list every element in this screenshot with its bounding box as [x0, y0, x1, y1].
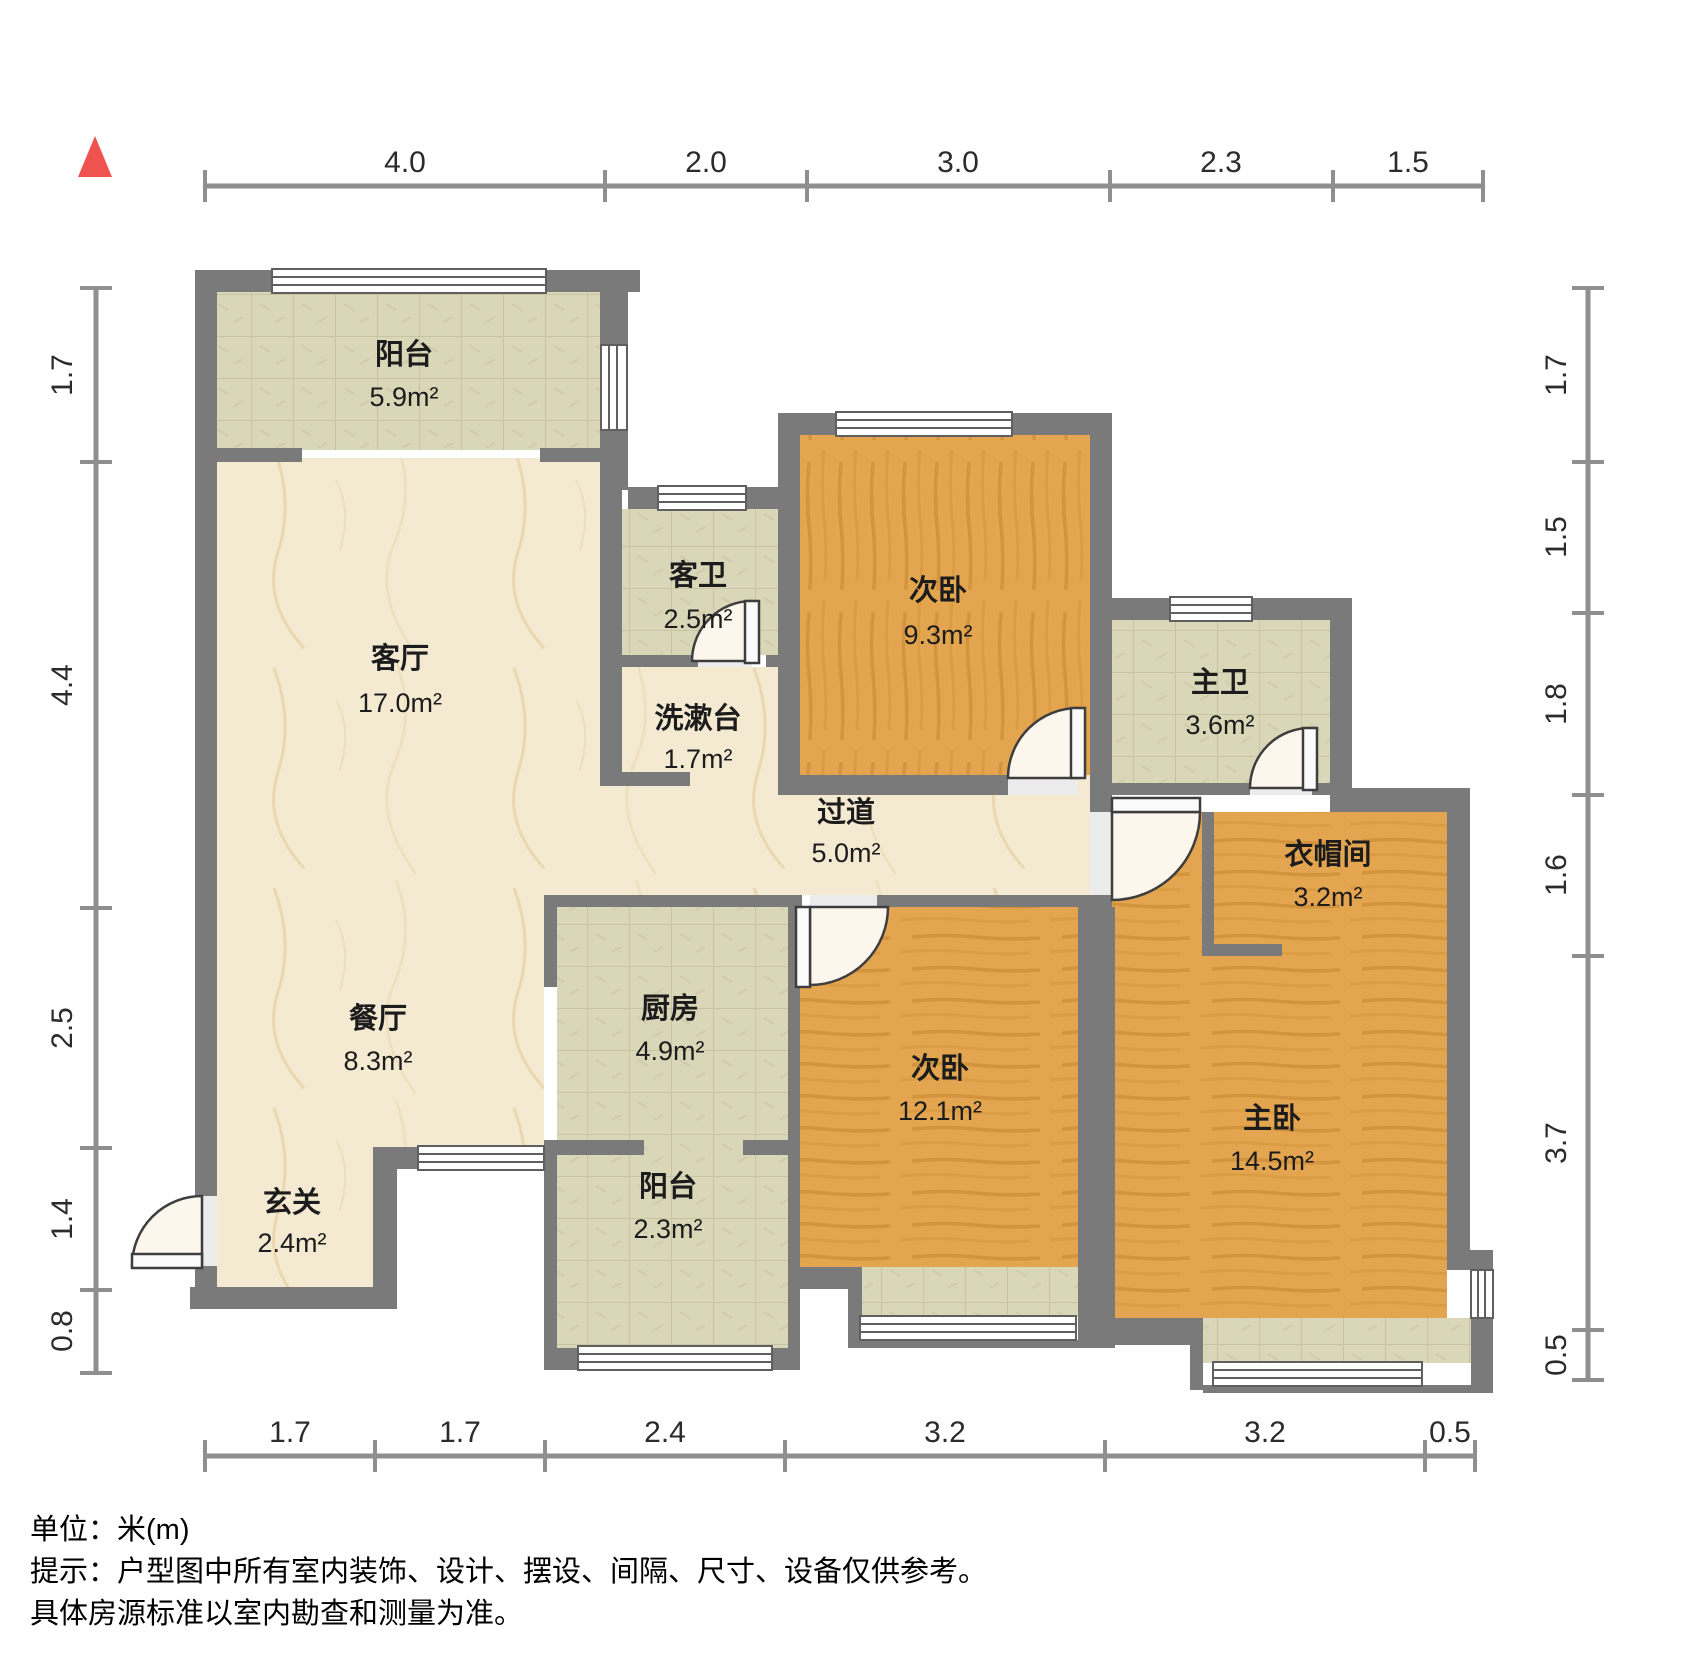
footer-unit: 单位：米(m): [30, 1506, 189, 1548]
bay-sill-bedroom-bottom: [862, 1267, 1078, 1317]
window-bay-master-side: [1471, 1270, 1493, 1318]
window-balcony-bottom: [578, 1346, 772, 1370]
dim-label: 3.2: [924, 1416, 966, 1449]
dim-label: 2.0: [685, 146, 727, 179]
door-entry: [132, 1196, 202, 1268]
svg-text:客厅: 客厅: [371, 641, 429, 675]
bay-sill-master: [1203, 1318, 1471, 1363]
svg-text:14.5m²: 14.5m²: [1230, 1146, 1314, 1176]
svg-text:2.4m²: 2.4m²: [257, 1228, 326, 1258]
footer-tip-line1: 提示：户型图中所有室内装饰、设计、摆设、间隔、尺寸、设备仅供参考。: [30, 1548, 987, 1590]
svg-text:3.6m²: 3.6m²: [1185, 710, 1254, 740]
svg-text:阳台: 阳台: [639, 1169, 697, 1203]
dim-label: 1.6: [1540, 854, 1573, 896]
floor-kitchen-and-balcony: [557, 907, 788, 1348]
window-master-bath: [1170, 597, 1252, 621]
dim-label: 1.7: [269, 1416, 311, 1449]
window-balcony-top: [272, 269, 546, 293]
svg-text:洗漱台: 洗漱台: [654, 701, 741, 735]
dim-label: 1.5: [1540, 516, 1573, 558]
dim-right: 1.7 1.5 1.8 1.6 3.7 0.5: [1540, 288, 1604, 1380]
floor-living: [217, 458, 600, 907]
dim-label: 1.7: [1540, 354, 1573, 396]
svg-text:主卫: 主卫: [1191, 666, 1249, 699]
dim-label: 1.8: [1540, 683, 1573, 725]
svg-text:客卫: 客卫: [669, 558, 727, 592]
dim-label: 4.4: [46, 664, 79, 706]
dim-label: 2.4: [644, 1416, 686, 1449]
north-arrow-icon: [78, 136, 112, 177]
svg-text:17.0m²: 17.0m²: [358, 688, 442, 718]
threshold-bedroom-bottom: [810, 895, 888, 907]
dim-label: 0.5: [1429, 1416, 1471, 1449]
svg-text:5.9m²: 5.9m²: [369, 382, 438, 412]
threshold-master-suite: [1090, 812, 1112, 895]
dim-label: 1.7: [439, 1416, 481, 1449]
window-dining-south: [418, 1146, 544, 1170]
dim-label: 2.5: [46, 1007, 79, 1049]
svg-text:次卧: 次卧: [911, 1052, 969, 1085]
svg-text:12.1m²: 12.1m²: [898, 1096, 982, 1126]
window-bedroom-top: [836, 412, 1012, 436]
dim-label: 0.8: [46, 1310, 79, 1352]
floor-plan-page: 阳台 5.9m² 客厅 17.0m² 客卫 2.5m² 洗漱台 1.7m² 次卧…: [0, 0, 1682, 1663]
dim-label: 2.3: [1200, 146, 1242, 179]
svg-text:3.2m²: 3.2m²: [1293, 882, 1362, 912]
svg-text:餐厅: 餐厅: [349, 1002, 407, 1035]
dim-label: 3.2: [1244, 1416, 1286, 1449]
window-balcony-side: [601, 345, 627, 430]
dim-label: 3.0: [937, 146, 979, 179]
window-guest-bath: [658, 486, 746, 510]
svg-text:2.3m²: 2.3m²: [633, 1214, 702, 1244]
svg-text:1.7m²: 1.7m²: [663, 744, 732, 774]
svg-text:过道: 过道: [817, 796, 875, 829]
svg-text:2.5m²: 2.5m²: [663, 604, 732, 634]
window-bay-master: [1213, 1362, 1422, 1386]
floor-cloakroom: [1214, 812, 1447, 944]
svg-text:阳台: 阳台: [375, 337, 433, 371]
dim-label: 3.7: [1540, 1122, 1573, 1164]
svg-text:主卧: 主卧: [1243, 1102, 1301, 1135]
dim-label: 1.7: [46, 354, 79, 396]
svg-text:玄关: 玄关: [263, 1185, 321, 1219]
floor-plan: 阳台 5.9m² 客厅 17.0m² 客卫 2.5m² 洗漱台 1.7m² 次卧…: [0, 0, 1682, 1663]
floor-balcony-top: [217, 292, 600, 450]
svg-text:衣帽间: 衣帽间: [1284, 838, 1371, 871]
dim-label: 1.4: [46, 1198, 79, 1240]
svg-text:次卧: 次卧: [909, 574, 967, 607]
svg-text:8.3m²: 8.3m²: [343, 1046, 412, 1076]
dim-label: 1.5: [1387, 146, 1429, 179]
svg-text:5.0m²: 5.0m²: [811, 838, 880, 868]
svg-text:厨房: 厨房: [641, 992, 699, 1025]
dim-top: 4.0 2.0 3.0 2.3 1.5: [205, 146, 1483, 202]
svg-text:9.3m²: 9.3m²: [903, 620, 972, 650]
svg-text:4.9m²: 4.9m²: [635, 1036, 704, 1066]
footer-tip-line2: 具体房源标准以室内勘查和测量为准。: [30, 1590, 523, 1632]
dim-label: 4.0: [384, 146, 426, 179]
window-bay-bedroom-bottom: [860, 1316, 1076, 1340]
dim-left: 1.7 4.4 2.5 1.4 0.8: [46, 288, 112, 1373]
dim-label: 0.5: [1540, 1334, 1573, 1376]
dim-bottom: 1.7 1.7 2.4 3.2 3.2 0.5: [205, 1416, 1475, 1472]
